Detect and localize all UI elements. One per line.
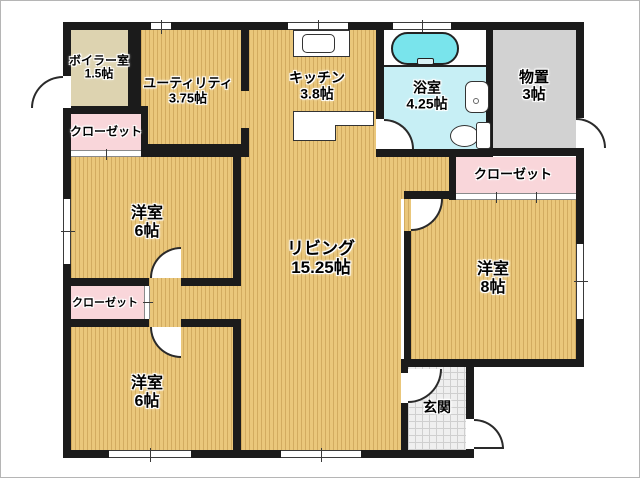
wall-entrance-top <box>401 359 476 367</box>
west-room-2-name: 洋室 <box>131 375 163 393</box>
window-right-westroom3 <box>576 244 584 319</box>
closet-tl-door <box>71 150 141 157</box>
wall-storage-bottom <box>493 148 576 156</box>
west-room-3-size: 8帖 <box>477 279 509 297</box>
bath-label: 浴室 4.25帖 <box>406 80 447 111</box>
west-room-1-label: 洋室 6帖 <box>131 205 163 241</box>
wall-westroom3-top-stub <box>404 191 456 199</box>
closet-tl-label: クローゼット <box>70 125 142 138</box>
kitchen-sink-icon <box>302 34 335 53</box>
living-label: リビング 15.25帖 <box>287 239 355 277</box>
window-bottom-westroom2 <box>109 450 191 458</box>
toilet-bowl-icon <box>450 125 479 147</box>
wall-closet-tl-right <box>141 106 148 157</box>
closet-tr-door <box>456 193 576 200</box>
washbasin-drain-icon <box>473 98 479 104</box>
closet-tr-name: クローゼット <box>474 168 552 183</box>
door-gap-entrance <box>466 419 474 449</box>
wall-westroom2-right <box>233 327 241 450</box>
west-room-3-label: 洋室 8帖 <box>477 261 509 297</box>
west-room-1-size: 6帖 <box>131 223 163 241</box>
bathtub-handle-icon <box>417 58 434 65</box>
door-gap-entrance-hall <box>401 373 408 403</box>
kitchen-l-counter-a <box>293 111 374 126</box>
storage-exterior-door-icon <box>576 118 606 148</box>
window-top-kitchen <box>288 22 348 30</box>
living-floor <box>241 157 401 450</box>
wall-westroom3-bottom <box>466 359 584 367</box>
west-room-2-size: 6帖 <box>131 393 163 411</box>
door-gap-floor-a <box>149 278 181 286</box>
washbasin-icon <box>465 81 489 113</box>
window-top-utility <box>151 22 171 30</box>
wall-westroom1-bottom-a <box>63 278 149 286</box>
wall-utility-kitchen-a <box>241 30 249 91</box>
wall-boiler-closet <box>63 106 148 114</box>
west-room-1-name: 洋室 <box>131 205 163 223</box>
utility-size: 3.75帖 <box>143 91 232 106</box>
wall-bath-bottom <box>376 149 493 157</box>
kitchen-l-counter-b <box>293 125 336 141</box>
hall-floor-west <box>149 286 233 319</box>
boiler-room-size: 1.5帖 <box>69 68 129 81</box>
storage-size: 3帖 <box>519 87 549 104</box>
closet-ml-label: クローゼット <box>72 297 138 309</box>
west-room-3-name: 洋室 <box>477 261 509 279</box>
utility-kitchen-opening <box>241 91 249 128</box>
wall-entrance-left <box>401 403 408 450</box>
closet-tl-name: クローゼット <box>70 125 142 138</box>
kitchen-name: キッチン <box>289 70 345 86</box>
kitchen-label: キッチン 3.8帖 <box>289 70 345 101</box>
wall-westroom2-top-a <box>63 319 149 327</box>
floor-plan-canvas: ボイラー室 1.5帖 クローゼット ユーティリティ 3.75帖 キッチン 3.8… <box>0 0 640 478</box>
wall-bath-left <box>376 30 384 119</box>
window-left-westroom1 <box>63 199 71 264</box>
kitchen-size: 3.8帖 <box>289 86 345 102</box>
boiler-room-label: ボイラー室 1.5帖 <box>69 55 129 82</box>
toilet-tank-icon <box>476 122 491 149</box>
closet-ml-name: クローゼット <box>72 297 138 309</box>
wall-westroom2-top-b <box>181 319 241 327</box>
boiler-exterior-door-icon <box>31 76 63 108</box>
utility-name: ユーティリティ <box>143 76 232 91</box>
door-gap-floor-b <box>149 319 181 327</box>
storage-label: 物置 3帖 <box>519 70 549 104</box>
wall-westroom1-right <box>233 156 241 286</box>
wall-westroom1-bottom-b <box>181 278 241 286</box>
living-name: リビング <box>287 239 355 258</box>
hall-living-opening <box>233 286 241 319</box>
west-room-2-label: 洋室 6帖 <box>131 375 163 411</box>
entrance-main-door-icon <box>474 419 504 449</box>
storage-name: 物置 <box>519 70 549 87</box>
bath-size: 4.25帖 <box>406 96 447 112</box>
wall-utility-kitchen-b <box>241 128 249 157</box>
bath-name: 浴室 <box>406 80 447 96</box>
wall-westroom3-left <box>404 231 411 359</box>
closet-ml-door <box>144 286 150 319</box>
utility-label: ユーティリティ 3.75帖 <box>143 76 232 105</box>
living-size: 15.25帖 <box>287 258 355 277</box>
window-bottom-living <box>281 450 361 458</box>
entrance-label: 玄関 <box>423 400 451 416</box>
closet-tr-label: クローゼット <box>474 168 552 183</box>
wall-boiler-right <box>128 30 141 114</box>
door-gap-floor <box>404 199 411 231</box>
door-gap-bath <box>376 119 384 149</box>
window-top-bath <box>393 22 451 30</box>
entrance-name: 玄関 <box>423 400 451 416</box>
